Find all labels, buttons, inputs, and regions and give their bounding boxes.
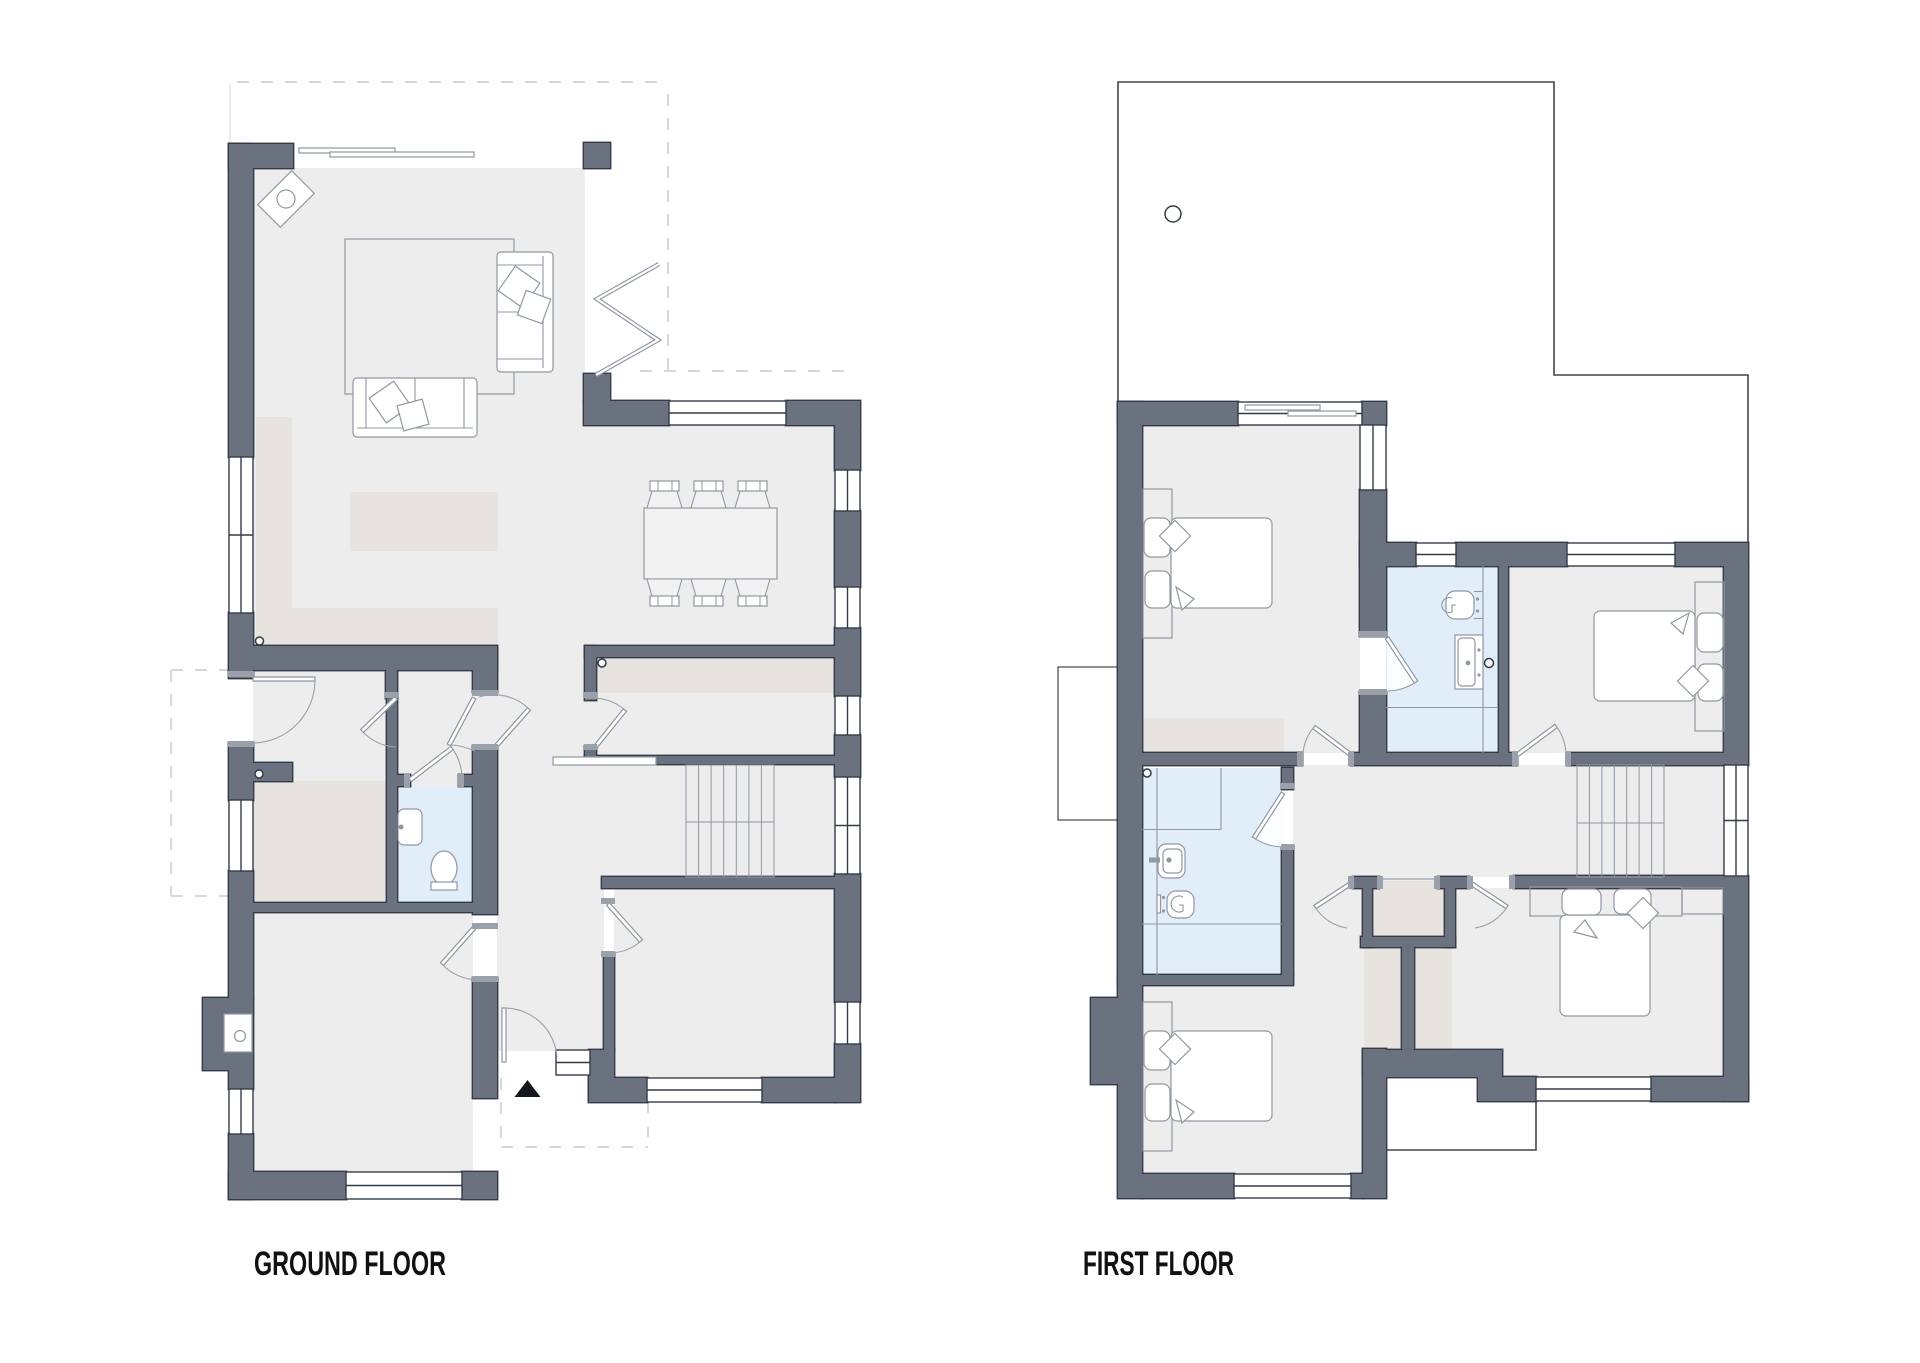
svg-text:FIRST FLOOR: FIRST FLOOR (1083, 1245, 1234, 1283)
svg-text:GROUND FLOOR: GROUND FLOOR (254, 1245, 446, 1283)
